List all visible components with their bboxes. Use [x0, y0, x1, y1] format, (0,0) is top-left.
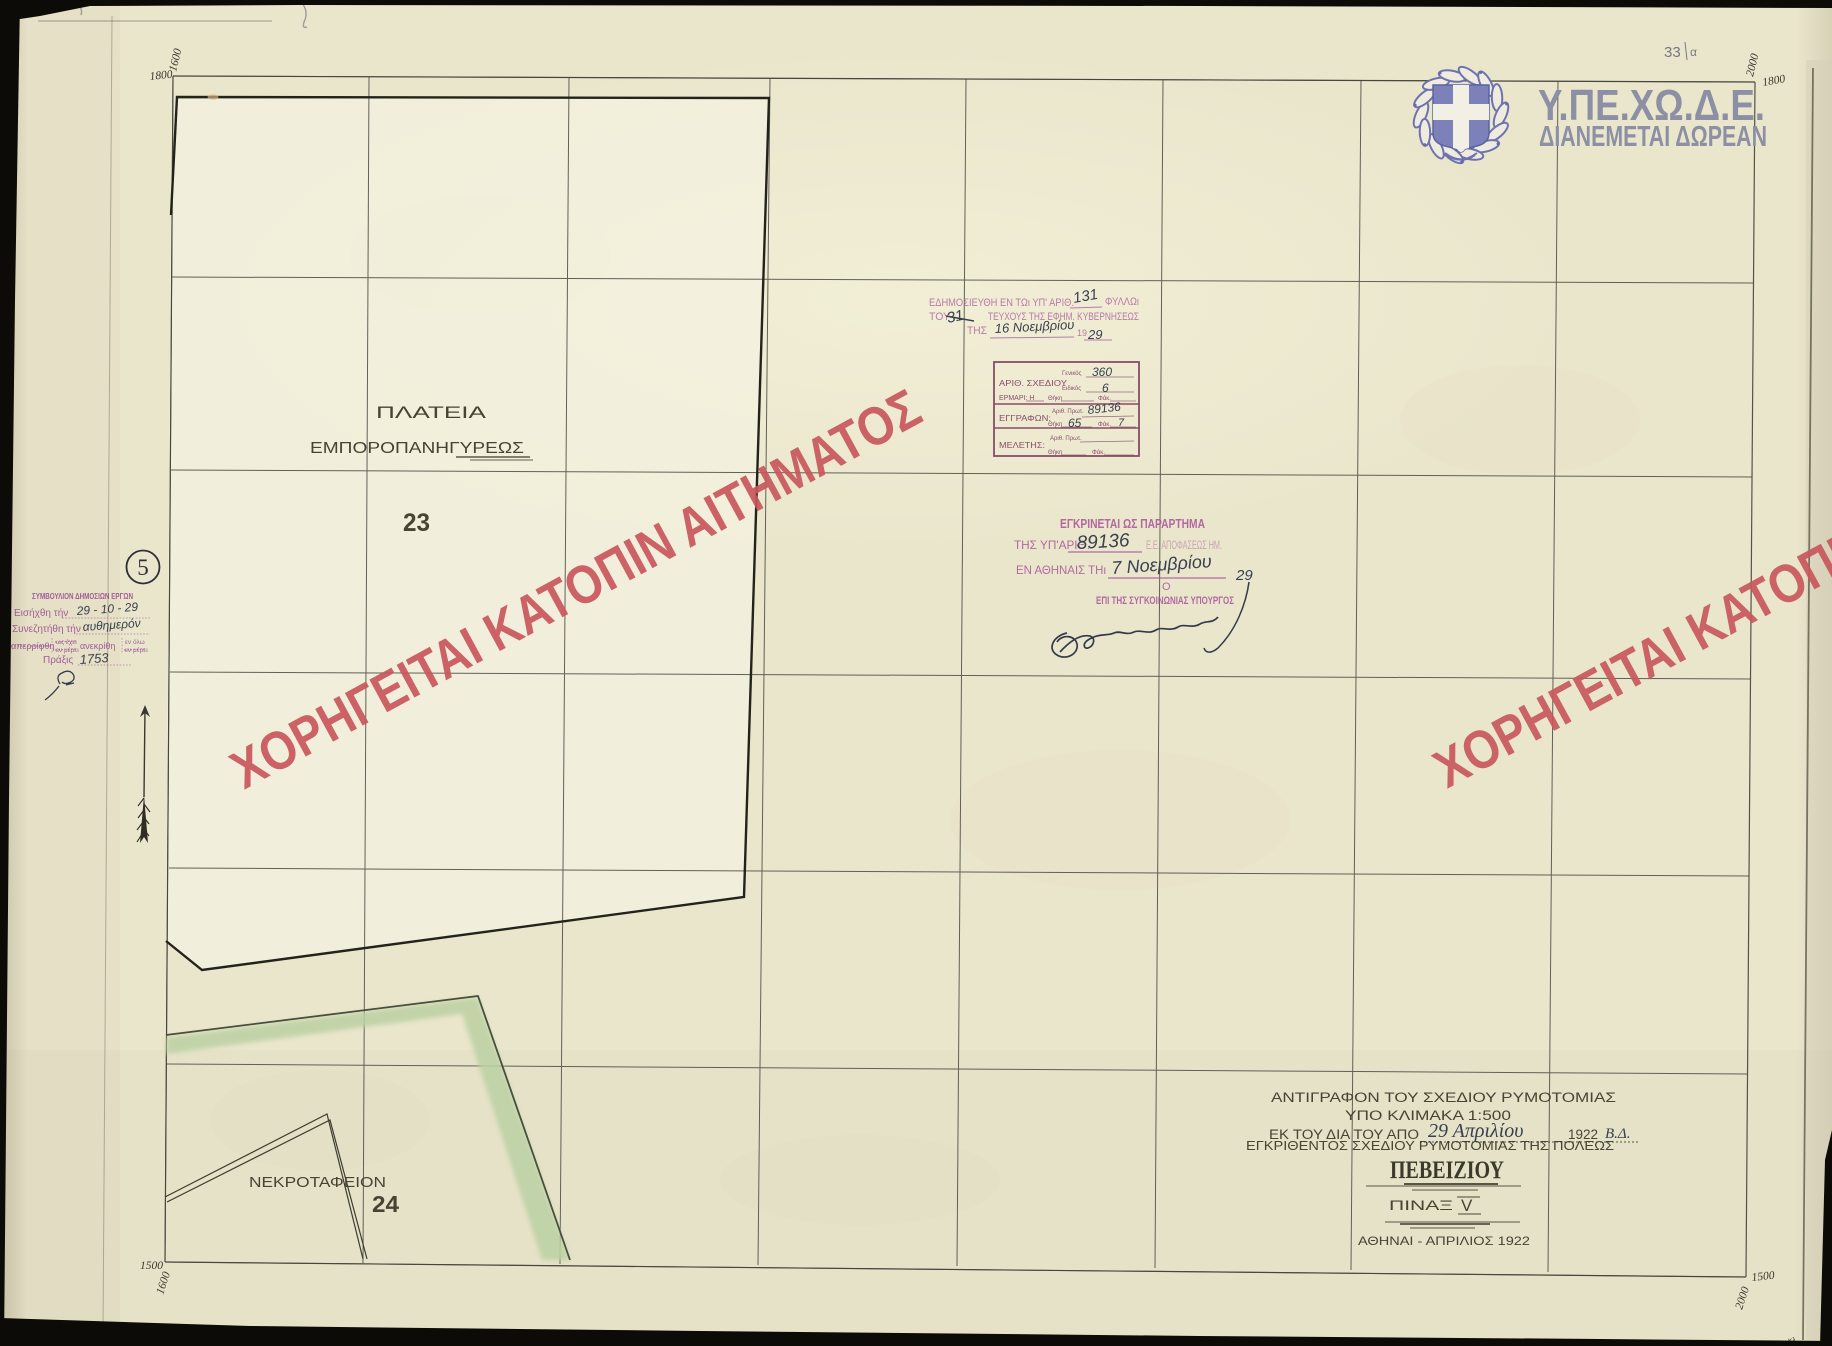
svg-text:ΣΥΜΒΟΥΛΙΟΝ ΔΗΜΟΣΙΩΝ ΕΡΓΩΝ: ΣΥΜΒΟΥΛΙΟΝ ΔΗΜΟΣΙΩΝ ΕΡΓΩΝ — [32, 591, 133, 601]
svg-text:Β.Δ.: Β.Δ. — [1605, 1126, 1630, 1142]
svg-text:Θήκη: Θήκη — [1048, 421, 1062, 428]
svg-text:Ο: Ο — [1162, 581, 1171, 593]
svg-text:6: 6 — [1102, 381, 1109, 395]
svg-text:33: 33 — [1664, 44, 1681, 61]
svg-text:εν όλω: εν όλω — [125, 638, 145, 646]
svg-text:7: 7 — [1118, 417, 1125, 429]
svg-text:ΤΗΣ: ΤΗΣ — [967, 325, 987, 337]
svg-text:Φάκ.: Φάκ. — [1092, 449, 1105, 456]
svg-text:1500: 1500 — [140, 1260, 163, 1272]
svg-text:23: 23 — [403, 509, 430, 537]
svg-text:ΕΔΗΜΟΣΙΕΥΘΗ ΕΝ ΤΩι ΥΠ' ΑΡΙΘ.: ΕΔΗΜΟΣΙΕΥΘΗ ΕΝ ΤΩι ΥΠ' ΑΡΙΘ. — [929, 297, 1074, 309]
svg-text:Συνεζητήθη τήν: Συνεζητήθη τήν — [12, 623, 81, 635]
svg-text:Αριθ. Πρωτ.: Αριθ. Πρωτ. — [1050, 436, 1082, 442]
svg-text:1500: 1500 — [1751, 1270, 1775, 1284]
svg-text:89136: 89136 — [1076, 530, 1130, 554]
svg-text:ΠΛΑΤΕΙΑ: ΠΛΑΤΕΙΑ — [376, 403, 487, 422]
svg-text:ΕΝ ΑΘΗΝΑΙΣ ΤΗι: ΕΝ ΑΘΗΝΑΙΣ ΤΗι — [1016, 563, 1106, 577]
svg-text:ΑΘΗΝΑΙ - ΑΠΡΙΛΙΟΣ 1922: ΑΘΗΝΑΙ - ΑΠΡΙΛΙΟΣ 1922 — [1358, 1234, 1530, 1248]
svg-text:Θήκη: Θήκη — [1048, 449, 1062, 456]
svg-text:Αριθ. Πρωτ.: Αριθ. Πρωτ. — [1052, 409, 1084, 415]
svg-text:360: 360 — [1092, 365, 1112, 379]
svg-text:V: V — [1461, 1196, 1473, 1215]
svg-text:ανεκρίθη: ανεκρίθη — [80, 641, 115, 651]
svg-text:α: α — [1690, 45, 1697, 59]
svg-text:ΝΕΚΡΟΤΑΦΕΙΟΝ: ΝΕΚΡΟΤΑΦΕΙΟΝ — [249, 1174, 386, 1191]
svg-text:Ειδικός: Ειδικός — [1062, 385, 1081, 392]
svg-text:ΔΙΑΝΕΜΕΤΑΙ ΔΩΡΕΑΝ: ΔΙΑΝΕΜΕΤΑΙ ΔΩΡΕΑΝ — [1539, 121, 1767, 153]
svg-text:19: 19 — [1077, 328, 1087, 338]
svg-text:5: 5 — [137, 555, 149, 580]
svg-text:Φάκ.: Φάκ. — [1098, 421, 1111, 428]
svg-text:ΦΥΛΛΩι: ΦΥΛΛΩι — [1105, 296, 1139, 308]
svg-text:1753: 1753 — [79, 650, 110, 667]
svg-text:ΕΓΓΡΑΦΩΝ:: ΕΓΓΡΑΦΩΝ: — [999, 413, 1051, 423]
svg-text:ΠΕΒΕΙΖΙΟΥ: ΠΕΒΕΙΖΙΟΥ — [1390, 1157, 1504, 1184]
svg-text:29: 29 — [1087, 327, 1102, 342]
svg-text:ΕΠΙ ΤΗΣ ΣΥΓΚΟΙΝΩΝΙΑΣ ΥΠΟΥΡΓΟΣ: ΕΠΙ ΤΗΣ ΣΥΓΚΟΙΝΩΝΙΑΣ ΥΠΟΥΡΓΟΣ — [1096, 595, 1234, 607]
svg-text:Ε.Ε. ΑΠΟΦΑΣΕΩΣ ΗΜ.: Ε.Ε. ΑΠΟΦΑΣΕΩΣ ΗΜ. — [1146, 538, 1222, 552]
svg-text:ΕΜΠΟΡΟΠΑΝΗΓΥΡΕΩΣ: ΕΜΠΟΡΟΠΑΝΗΓΥΡΕΩΣ — [310, 440, 524, 457]
svg-text:24: 24 — [372, 1191, 399, 1217]
svg-text:ΠΙΝΑΞ: ΠΙΝΑΞ — [1389, 1198, 1453, 1213]
svg-text:ΜΕΛΕΤΗΣ:: ΜΕΛΕΤΗΣ: — [999, 440, 1045, 450]
svg-text:Θήκη: Θήκη — [1048, 395, 1062, 402]
svg-text:Πράξις: Πράξις — [43, 654, 73, 666]
svg-text:ΑΝΤΙΓΡΑΦΟΝ ΤΟΥ ΣΧΕΔΙΟΥ ΡΥΜΟΤΟΜ: ΑΝΤΙΓΡΑΦΟΝ ΤΟΥ ΣΧΕΔΙΟΥ ΡΥΜΟΤΟΜΙΑΣ — [1271, 1090, 1616, 1105]
svg-text:29 Απριλίου: 29 Απριλίου — [1428, 1120, 1523, 1142]
svg-text:Γενικός: Γενικός — [1062, 370, 1082, 377]
svg-text:65: 65 — [1068, 416, 1082, 430]
svg-text:ΑΡΙΘ. ΣΧΕΔΙΟΥ: ΑΡΙΘ. ΣΧΕΔΙΟΥ — [999, 378, 1067, 388]
svg-text:29: 29 — [1235, 567, 1253, 584]
svg-text:Εισήχθη τήν: Εισήχθη τήν — [14, 607, 68, 619]
svg-text:ΕΓΚΡΙΝΕΤΑΙ ΩΣ ΠΑΡΑΡΤΗΜΑ: ΕΓΚΡΙΝΕΤΑΙ ΩΣ ΠΑΡΑΡΤΗΜΑ — [1060, 516, 1205, 531]
